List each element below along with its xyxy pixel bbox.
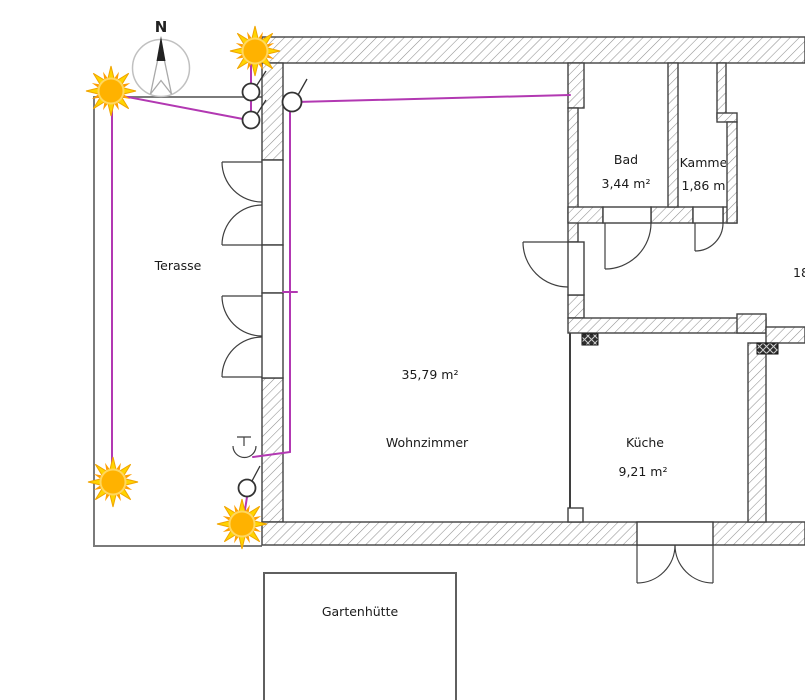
switch-icon	[283, 93, 302, 112]
walls	[262, 37, 805, 545]
compass-north-label: N	[155, 18, 168, 36]
room-label-kammer: Kammer	[680, 155, 734, 170]
kitchen-door-frame	[637, 522, 713, 545]
room-area-bad: 3,44 m²	[602, 176, 651, 191]
chamber-door-frame	[693, 207, 723, 223]
room-area-wohnzimmer: 35,79 m²	[402, 367, 459, 382]
wiring-lines	[112, 62, 570, 516]
room-area-kueche: 9,21 m²	[619, 464, 668, 479]
switch-icon	[239, 480, 256, 497]
room-area-right-clipped: 18	[793, 265, 805, 280]
installation-shaft-icon	[757, 343, 778, 354]
terrace-door-frame-upper	[262, 160, 283, 245]
bath-door-frame	[603, 207, 651, 223]
north-compass-icon: N	[133, 18, 190, 97]
door-swings	[222, 162, 723, 583]
room-label-kueche: Küche	[626, 435, 664, 450]
terrace-window-post	[262, 245, 283, 293]
room-label-bad: Bad	[614, 152, 638, 167]
garden-hut-outline	[264, 573, 456, 700]
sun-icon	[215, 497, 269, 551]
room-label-wohnzimmer: Wohnzimmer	[386, 435, 469, 450]
switch-icon	[243, 112, 260, 129]
installation-shaft-icon	[582, 334, 598, 345]
room-area-kammer: 1,86 m²	[682, 178, 731, 193]
terrace-door-frame-lower	[262, 293, 283, 378]
floor-plan-drawing: N	[0, 0, 805, 700]
kitchen-wall-step	[568, 508, 583, 522]
sun-icon	[84, 64, 138, 118]
room-label-gartenhuette: Gartenhütte	[322, 604, 399, 619]
livingroom-door-frame	[568, 242, 584, 295]
switch-icon	[243, 84, 260, 101]
floor-plan: N	[0, 0, 805, 700]
lamp-icon	[233, 437, 256, 458]
room-label-terasse: Terasse	[154, 258, 202, 273]
